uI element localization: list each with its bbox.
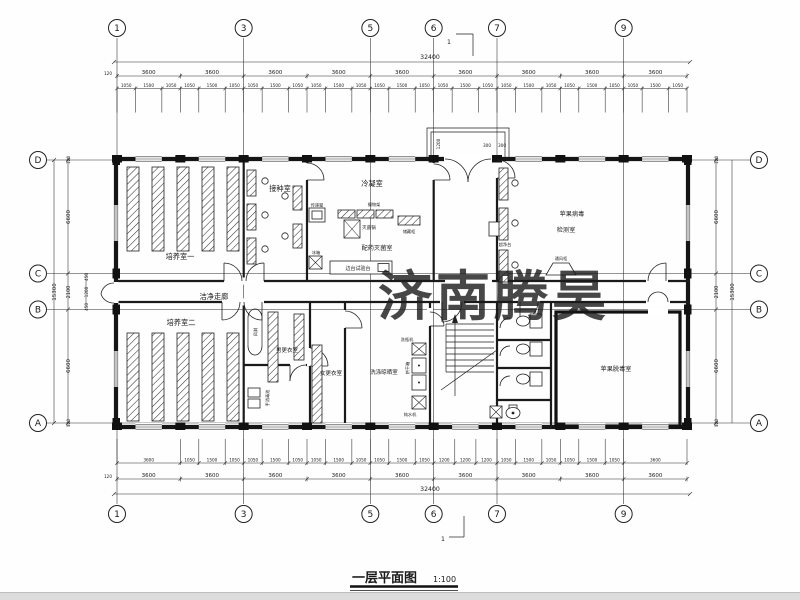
hand-sink-label: 手消毒池: [264, 389, 271, 407]
dim-value: 3600: [648, 70, 662, 76]
wall-pier: [175, 423, 185, 431]
dim-value: 1500: [397, 457, 408, 462]
dim-value: 1050: [184, 457, 195, 462]
dim-value: 1200: [460, 457, 471, 462]
air-shower-label: 风淋: [252, 327, 259, 336]
wall-pier: [365, 423, 375, 431]
room-label-corridor: 洁净走廊: [200, 292, 229, 301]
dim-value: 1500: [270, 457, 281, 462]
dim-value: 1050: [121, 83, 132, 88]
axis-bubble-label: 3: [241, 24, 247, 34]
axis-bubble-label: D: [35, 156, 42, 166]
wall-pier: [555, 155, 565, 163]
dim-overall-height-right: 15300: [730, 283, 736, 301]
dim-offset-top: 120: [104, 71, 112, 76]
dim-value: 1050: [438, 83, 449, 88]
dim-corridor: 450: [84, 273, 89, 281]
dim-value: 1500: [650, 83, 661, 88]
dim-value: 1500: [333, 83, 344, 88]
room-label-virus-1: 苹果病毒: [560, 210, 585, 218]
wall-pier: [113, 155, 121, 165]
room-label-men-change: 男更衣室: [276, 346, 299, 354]
dim-value: 3600: [650, 457, 661, 462]
wall-pier: [684, 305, 692, 315]
title-scale: 1:100: [433, 575, 456, 584]
dim-value: 3600: [332, 70, 346, 76]
dim-value: 1050: [184, 83, 195, 88]
dim-value: 1050: [501, 457, 512, 462]
dim-overall-width-bottom: 32400: [420, 486, 440, 493]
stool: [512, 220, 518, 226]
axis-bubble-label: 6: [431, 24, 437, 34]
wall-pier: [365, 155, 375, 163]
section-mark-bottom: 1: [441, 516, 464, 543]
dimension-bottom-bays: 360036003600360036003600360036003600: [115, 473, 689, 482]
stool: [512, 180, 518, 186]
dim-value: 1050: [564, 83, 575, 88]
dim-side: 120: [714, 156, 719, 164]
axis-bubble-label: 1: [114, 24, 120, 34]
dim-value: 1050: [546, 457, 557, 462]
dim-value: 1050: [546, 83, 557, 88]
dim-value: 3600: [205, 70, 219, 76]
dim-value: 1050: [419, 83, 430, 88]
axis-bubble-label: 1: [114, 510, 120, 520]
wall-pier: [175, 155, 185, 163]
dim-value: 3600: [522, 70, 536, 76]
dim-value: 1200: [439, 457, 450, 462]
dim-value: 1050: [482, 83, 493, 88]
axis-bubble-label: A: [35, 419, 42, 429]
axis-bubble-label: 5: [367, 24, 373, 34]
washing-equipment: 洗瓶机 烘干箱 纯水机: [401, 336, 426, 418]
axis-bubble-label: 5: [367, 510, 373, 520]
pass-window-label: 传递窗: [311, 202, 324, 209]
axis-bubble-label: 3: [241, 510, 247, 520]
wall-pier: [113, 305, 121, 315]
wall-pier: [619, 423, 629, 431]
dim-value: 1500: [523, 83, 534, 88]
dim-entrance-300a: 300: [483, 143, 491, 148]
dim-side: 2100: [714, 286, 720, 299]
dim-value: 3600: [268, 473, 282, 479]
wall-pier: [429, 423, 439, 431]
watermark-text: 济南腾昊: [378, 265, 610, 328]
dim-value: 1500: [207, 83, 218, 88]
dim-entrance-300b: 300: [498, 143, 506, 148]
dimension-bottom-subdims: 3600105015001050105015001050105015001050…: [115, 439, 689, 465]
dim-value: 1050: [672, 83, 683, 88]
dim-value: 3600: [395, 473, 409, 479]
bottle-washer-label: 洗瓶机: [401, 336, 414, 343]
axis-bubble-label: 9: [621, 510, 627, 520]
dim-side: 6600: [66, 210, 72, 224]
dimension-top-subdims: 1050150010501050150010501050150010501050…: [115, 83, 689, 113]
dim-value: 3600: [143, 457, 154, 462]
hand-sink: 手消毒池: [248, 388, 271, 408]
dim-value: 1050: [374, 83, 385, 88]
dim-value: 1200: [481, 457, 492, 462]
dim-offset-bottom: 120: [104, 474, 112, 479]
axis-bubble-label: C: [35, 270, 41, 280]
dim-value: 1050: [356, 457, 367, 462]
dim-value: 1050: [229, 83, 240, 88]
axis-bubble-label: 9: [621, 24, 627, 34]
sterilizer: 灭菌锅: [344, 220, 376, 238]
axis-bubble-label: A: [756, 419, 763, 429]
dim-value: 1050: [374, 457, 385, 462]
axis-bubble-label: B: [35, 306, 41, 316]
dim-value: 1050: [248, 83, 259, 88]
dim-overall-height-left: 15300: [52, 283, 58, 301]
room-label-virus-2: 检测室: [557, 226, 576, 234]
wall-pier: [302, 155, 312, 163]
axis-bubble-label: D: [756, 156, 763, 166]
title-text: 一层平面图: [352, 571, 417, 586]
dim-value: 1500: [270, 83, 281, 88]
pass-window: 传递窗: [309, 202, 325, 223]
dim-value: 1050: [419, 457, 430, 462]
dim-value: 1050: [166, 83, 177, 88]
dim-value: 3600: [395, 70, 409, 76]
dim-value: 3600: [458, 473, 472, 479]
dim-value: 3600: [522, 473, 536, 479]
dim-side: 6600: [714, 359, 720, 373]
wall-pier: [113, 418, 121, 428]
axis-bubble-label: B: [756, 306, 762, 316]
sterilizer-label: 灭菌锅: [362, 224, 376, 231]
room-label-condensation: 冷凝室: [361, 179, 383, 188]
dim-value: 1050: [292, 457, 303, 462]
section-mark-top: 1: [447, 34, 473, 56]
room-label-detox: 苹果脱毒室: [601, 365, 632, 373]
dim-value: 1500: [333, 457, 344, 462]
dim-side: 6600: [714, 210, 720, 224]
cabinet-label: 储藏柜: [403, 228, 416, 235]
floor-plan-page: 113355667799DDCCBBAA 32400 120 32400 120…: [0, 0, 800, 600]
dim-value: 1500: [523, 457, 534, 462]
room-label-washing: 洗涤晾晒室: [370, 368, 398, 376]
axis-bubble-label: 7: [494, 510, 500, 520]
room-label-prep: 配药灭菌室: [362, 244, 393, 252]
dim-value: 1050: [609, 457, 620, 462]
dim-value: 3600: [458, 70, 472, 76]
bench-label: 边台试验台: [345, 265, 370, 272]
dim-value: 3600: [648, 473, 662, 479]
dim-value: 1050: [501, 83, 512, 88]
drawing-title: 一层平面图 1:100: [350, 571, 458, 591]
stool: [262, 246, 268, 252]
wall-pier: [239, 155, 249, 163]
dim-value: 1500: [587, 83, 598, 88]
dim-entrance-depth: 1200: [436, 138, 441, 149]
axis-bubble-label: C: [756, 270, 762, 280]
room-label-culture2: 培养室二: [167, 318, 196, 327]
dim-value: 1500: [143, 83, 154, 88]
dimension-right: 120 6600 2100 6600 120 15300: [714, 156, 736, 427]
dim-value: 1500: [460, 83, 471, 88]
dim-corridor: 450: [84, 303, 89, 311]
wall-pier: [684, 418, 692, 428]
wall-pier: [684, 155, 692, 165]
dim-side: 120: [66, 156, 71, 164]
axis-bubble-label: 6: [431, 510, 437, 520]
dim-value: 1050: [311, 83, 322, 88]
stool: [282, 193, 288, 199]
stool: [262, 178, 268, 184]
dim-value: 1050: [564, 457, 575, 462]
water-machine-label: 纯水机: [404, 411, 417, 418]
wall-pier: [239, 423, 249, 431]
stool: [282, 233, 288, 239]
storage-cabinet: 储藏柜: [398, 216, 420, 235]
dim-value: 1500: [397, 83, 408, 88]
clean-bench-label: 超净台: [499, 241, 512, 248]
room-label-culture1: 培养室一: [166, 252, 195, 261]
room-label-women-change: 女更衣室: [320, 369, 343, 377]
dim-value: 3600: [142, 473, 156, 479]
wall-pier: [619, 155, 629, 163]
axis-bubble-label: 7: [494, 24, 500, 34]
stool: [262, 212, 268, 218]
dim-value: 3600: [585, 70, 599, 76]
dim-overall-width: 32400: [420, 54, 440, 61]
dim-value: 1050: [292, 83, 303, 88]
wall-pier: [492, 423, 502, 431]
dim-value: 1050: [356, 83, 367, 88]
shelf-rack: 搁物架: [338, 201, 393, 218]
culture1-racks: [127, 167, 239, 251]
dim-value: 3600: [205, 473, 219, 479]
wall-pier: [492, 155, 502, 163]
dim-value: 1050: [609, 83, 620, 88]
dim-value: 1050: [628, 83, 639, 88]
dimension-left: 15300 120 6600 2100 6600 120 450 1200 45…: [52, 156, 89, 427]
dim-value: 3600: [332, 473, 346, 479]
dim-value: 1050: [229, 457, 240, 462]
dim-value: 3600: [142, 70, 156, 76]
section-label-top: 1: [447, 39, 451, 46]
dim-value: 1500: [207, 457, 218, 462]
dim-side: 6600: [66, 359, 72, 373]
dim-value: 1050: [311, 457, 322, 462]
room-label-inoculation: 接种室: [269, 184, 291, 193]
dimension-top-bays: 360036003600360036003600360036003600: [115, 70, 689, 79]
culture2-racks: [127, 333, 239, 421]
dim-corridor: 1200: [84, 286, 89, 297]
dryer-label: 烘干箱: [404, 362, 411, 375]
wall-pier: [555, 423, 565, 431]
dim-side: 120: [66, 419, 71, 427]
wall-pier: [684, 269, 692, 279]
dim-value: 1050: [248, 457, 259, 462]
floor-plan-canvas: 113355667799DDCCBBAA 32400 120 32400 120…: [0, 0, 800, 600]
dim-value: 1500: [587, 457, 598, 462]
dim-value: 3600: [268, 70, 282, 76]
section-label-bottom: 1: [441, 536, 445, 543]
wall-pier: [113, 269, 121, 279]
bottom-scrollbar-strip[interactable]: [0, 592, 800, 600]
fridge: 冰箱: [309, 249, 322, 269]
wall-pier: [429, 155, 439, 163]
wall-pier: [302, 423, 312, 431]
fume-label: 通风柜: [555, 255, 568, 262]
dim-side: 120: [714, 419, 719, 427]
dim-value: 3600: [585, 473, 599, 479]
shelf-label: 搁物架: [368, 201, 381, 208]
dim-side: 2100: [66, 286, 72, 299]
fridge-label: 冰箱: [312, 249, 320, 256]
